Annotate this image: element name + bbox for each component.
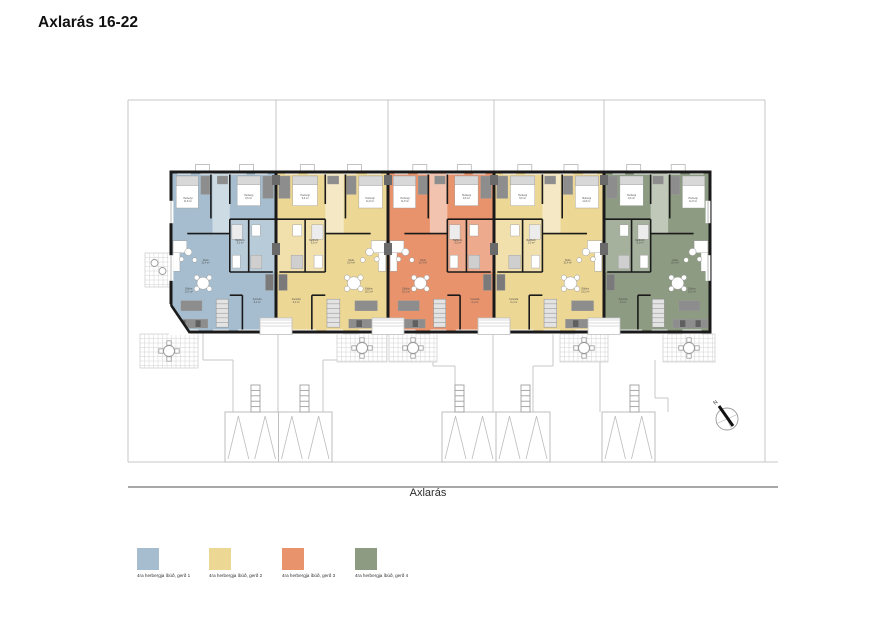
legend-swatch-4 — [355, 548, 377, 570]
room-label-unit-1-0: Herbergi11,8 m² — [183, 197, 193, 203]
outdoor-steps-4 — [521, 385, 530, 412]
page-title: Axlarás 16-22 — [38, 14, 138, 32]
site-plan-svg: Herbergi11,8 m²Herbergi9,6 m²Baðherb.5,2… — [0, 0, 875, 618]
terrace-1 — [145, 253, 172, 287]
outdoor-steps-3 — [455, 385, 464, 412]
unit-3-floorplan: Herbergi11,8 m²Herbergi9,6 m²Baðherb.5,2… — [388, 165, 494, 335]
terrace-6 — [663, 334, 715, 362]
outdoor-steps-2 — [300, 385, 309, 412]
unit-5-floorplan: Herbergi11,8 m²Herbergi9,6 m²Baðherb.5,2… — [604, 165, 710, 335]
terrace-5 — [560, 334, 608, 362]
north-label: N — [712, 399, 719, 406]
garden-table-icon — [684, 343, 695, 354]
terrace-3 — [337, 334, 387, 362]
room-label-unit-5-4: Eldhús10,2 m² — [688, 288, 697, 294]
unit-2-floorplan: Herbergi11,8 m²Herbergi9,6 m²Baðherb.5,2… — [276, 165, 388, 335]
room-label-unit-3-4: Eldhús10,2 m² — [402, 288, 411, 294]
garden-table-icon — [408, 343, 419, 354]
entrance-recess-2 — [372, 318, 404, 335]
outdoor-steps-1 — [251, 385, 260, 412]
room-label-unit-4-0: Herbergi11,8 m² — [582, 197, 592, 203]
building-floorplan: Herbergi11,8 m²Herbergi9,6 m²Baðherb.5,2… — [171, 165, 710, 335]
garden-shed-2 — [442, 412, 550, 462]
garden-chair-icon — [159, 268, 166, 275]
room-label-unit-5-0: Herbergi11,8 m² — [688, 197, 698, 203]
legend-swatch-3 — [282, 548, 304, 570]
legend-label-4: 4ra herbergja íbúð, gerð 4 — [355, 573, 408, 578]
garden-table-icon — [579, 343, 590, 354]
garden-shed-1 — [225, 412, 332, 462]
terrace-2 — [140, 334, 198, 368]
room-label-unit-4-4: Eldhús10,2 m² — [581, 288, 590, 294]
legend-label-2: 4ra herbergja íbúð, gerð 2 — [209, 573, 262, 578]
legend-swatch-1 — [137, 548, 159, 570]
north-arrow: N — [712, 399, 738, 430]
entrance-recess-4 — [588, 318, 620, 335]
unit-1-floorplan: Herbergi11,8 m²Herbergi9,6 m²Baðherb.5,2… — [171, 165, 276, 335]
street-label: Axlarás — [378, 487, 478, 499]
entrance-recess-1 — [260, 318, 292, 335]
room-label-unit-3-0: Herbergi11,8 m² — [400, 197, 410, 203]
garden-table-icon — [164, 346, 175, 357]
drawing-sheet: Herbergi11,8 m²Herbergi9,6 m²Baðherb.5,2… — [0, 0, 875, 618]
legend-label-3: 4ra herbergja íbúð, gerð 3 — [282, 573, 335, 578]
room-label-unit-2-4: Eldhús10,2 m² — [365, 288, 374, 294]
room-label-unit-1-4: Eldhús10,2 m² — [185, 288, 194, 294]
garden-table-icon — [357, 343, 368, 354]
garden-chair-icon — [151, 260, 158, 267]
garden-shed-3 — [602, 412, 655, 462]
room-label-unit-2-0: Herbergi11,8 m² — [365, 197, 375, 203]
legend-label-1: 4ra herbergja íbúð, gerð 1 — [137, 573, 190, 578]
legend-swatch-2 — [209, 548, 231, 570]
entrance-recess-3 — [478, 318, 510, 335]
terrace-4 — [389, 334, 437, 362]
unit-4-floorplan: Herbergi11,8 m²Herbergi9,6 m²Baðherb.5,2… — [494, 165, 604, 335]
outdoor-steps-5 — [630, 385, 639, 412]
